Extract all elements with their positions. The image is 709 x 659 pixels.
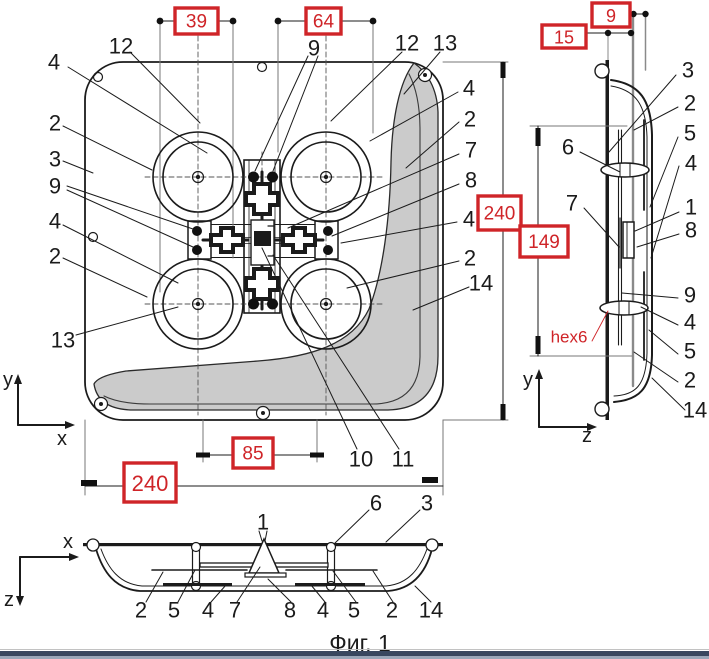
- side-view: [530, 11, 685, 431]
- callout-label: 4: [317, 598, 329, 623]
- callout-label: 2: [464, 246, 476, 271]
- callout-label: 2: [386, 598, 398, 623]
- side-axis-y-label: y: [523, 369, 533, 391]
- callout-label: 5: [684, 121, 696, 146]
- callout-label: 2: [135, 598, 147, 623]
- callout-label: 12: [395, 31, 419, 56]
- callout-label: 8: [685, 218, 697, 243]
- callout-label: 1: [685, 195, 697, 220]
- callout-label: 2: [49, 111, 61, 136]
- callout-label: 9: [684, 283, 696, 308]
- callout-label: 3: [421, 491, 433, 516]
- callout-label: 4: [49, 209, 61, 234]
- callout-label: 4: [48, 50, 60, 75]
- callout-label: 3: [49, 147, 61, 172]
- front-view: [14, 18, 508, 495]
- callout-label: 2: [49, 244, 61, 269]
- callout-label: 4: [685, 151, 697, 176]
- callout-label: 6: [370, 491, 382, 516]
- callout-label: 8: [465, 168, 477, 193]
- dimension-box: 64: [306, 8, 341, 34]
- callout-label: 2: [684, 91, 696, 116]
- dimension-box: 15: [542, 25, 586, 48]
- bottom-axis-z-label: z: [4, 589, 14, 611]
- bottom-leader-lines: [146, 510, 431, 602]
- side-bottom-lug: [595, 402, 609, 416]
- callout-label: 4: [463, 76, 475, 101]
- dimension-box: 85: [233, 438, 273, 468]
- callout-label: 9: [308, 36, 320, 61]
- dimension-value: 149: [528, 232, 560, 253]
- callout-label: 5: [348, 598, 360, 623]
- callout-label: 2: [464, 107, 476, 132]
- callout-label: 14: [683, 398, 707, 423]
- dimension-value: 39: [186, 12, 207, 33]
- central-block: [251, 220, 274, 265]
- front-axes: [14, 374, 75, 429]
- hex6-annotation: hex6: [551, 328, 588, 347]
- dimension-value: 85: [242, 444, 263, 465]
- bottom-axes: [16, 553, 79, 606]
- dimension-box: 240: [124, 463, 176, 502]
- side-axes: [535, 369, 597, 431]
- callout-label: 11: [392, 447, 415, 472]
- front-axis-x-label: x: [57, 428, 67, 450]
- dimension-value: 240: [484, 204, 516, 225]
- callout-label: 7: [465, 138, 477, 163]
- dimension-box: 39: [175, 8, 218, 34]
- dimension-value: 64: [313, 12, 335, 33]
- callout-label: 4: [202, 598, 214, 623]
- callout-label: 8: [284, 598, 296, 623]
- dimension-box: 240: [478, 196, 521, 230]
- callout-label: 10: [349, 447, 373, 472]
- callout-label: 1: [257, 510, 269, 535]
- callout-label: 9: [49, 174, 61, 199]
- front-axis-y-label: y: [3, 369, 13, 391]
- callout-label: 5: [168, 598, 180, 623]
- bottom-axis-x-label: x: [63, 531, 73, 553]
- callout-label: 4: [463, 207, 475, 232]
- callout-label: 12: [109, 34, 133, 59]
- callout-label: 13: [51, 328, 75, 353]
- bottom-view: [16, 510, 443, 606]
- callout-label: 4: [684, 310, 696, 335]
- dimension-box: 149: [520, 226, 568, 257]
- dimension-box: 9: [592, 3, 630, 27]
- callout-label: 7: [566, 191, 578, 216]
- callout-label: 14: [419, 598, 443, 623]
- side-axis-z-label: z: [582, 425, 592, 447]
- figure-drawing: 412239421391213427842141011yx32546718945…: [0, 0, 709, 659]
- callout-label: 3: [682, 58, 694, 83]
- callout-label: 2: [684, 368, 696, 393]
- dimension-value: 240: [132, 471, 169, 496]
- callout-label: 7: [229, 598, 241, 623]
- page-divider-line: [0, 649, 709, 650]
- patent-figure-page: 412239421391213427842141011yx32546718945…: [0, 0, 709, 659]
- callout-label: 14: [469, 271, 493, 296]
- callout-label: 6: [562, 135, 574, 160]
- dimension-value: 9: [606, 6, 616, 26]
- callout-label: 13: [433, 31, 457, 56]
- side-base-plate: [606, 60, 610, 420]
- dimension-value: 15: [554, 28, 574, 48]
- side-top-lug: [595, 64, 609, 78]
- callout-label: 5: [684, 339, 696, 364]
